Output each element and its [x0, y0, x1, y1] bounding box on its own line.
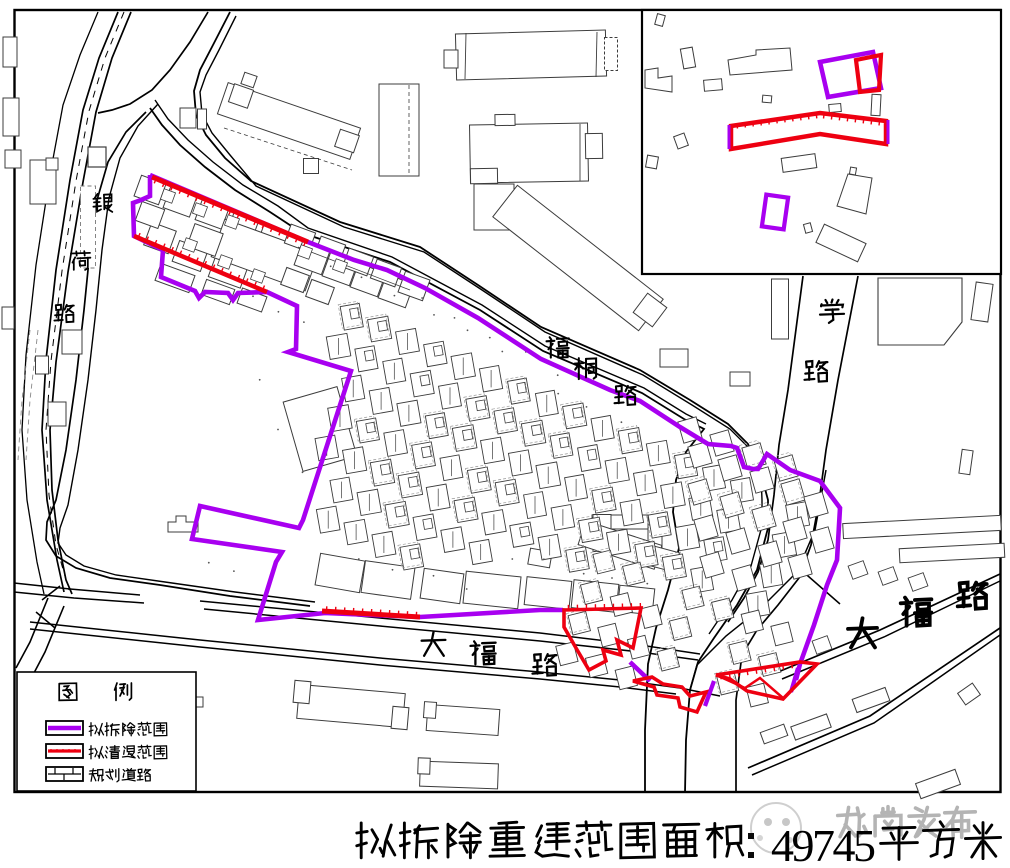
- svg-text:49745: 49745: [771, 820, 875, 868]
